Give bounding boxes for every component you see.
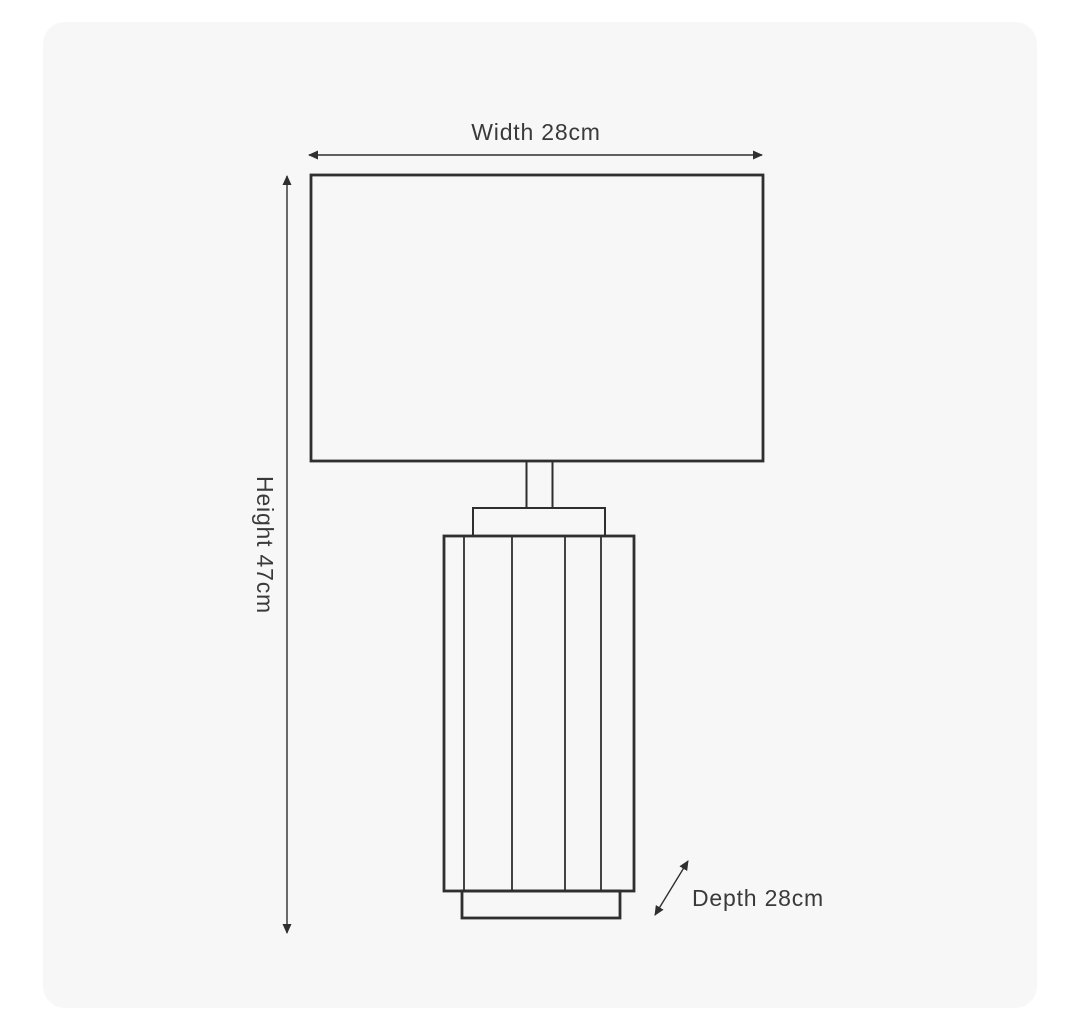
depth-dimension-label: Depth 28cm [692, 885, 824, 911]
lamp-collar-outline [473, 508, 605, 536]
lamp-shade-outline [311, 175, 763, 461]
lamp-dimension-diagram: Width 28cm Height 47cm Depth 28cm [0, 0, 1080, 1016]
height-dimension-label: Height 47cm [252, 476, 278, 614]
width-dimension-label: Width 28cm [471, 119, 600, 145]
depth-dimension-arrow [655, 861, 688, 915]
dimension-annotations: Width 28cm Height 47cm Depth 28cm [252, 119, 824, 933]
lamp-column-outline [444, 536, 634, 891]
lamp-drawing [311, 175, 763, 918]
lamp-plinth-outline [462, 891, 620, 918]
